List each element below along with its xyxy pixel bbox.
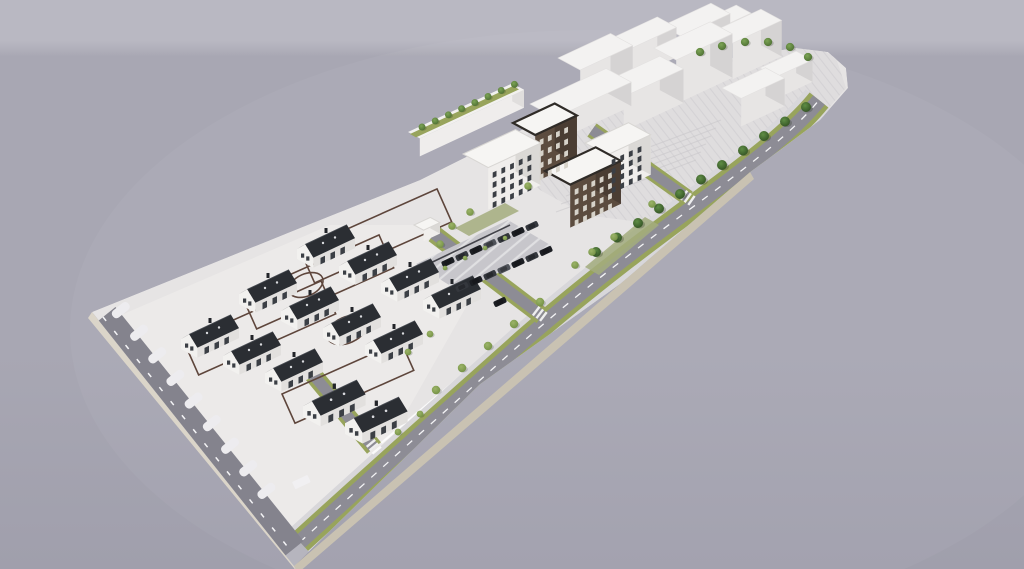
- architectural-render: Aerial 3D architectural rendering of a l…: [0, 0, 1024, 569]
